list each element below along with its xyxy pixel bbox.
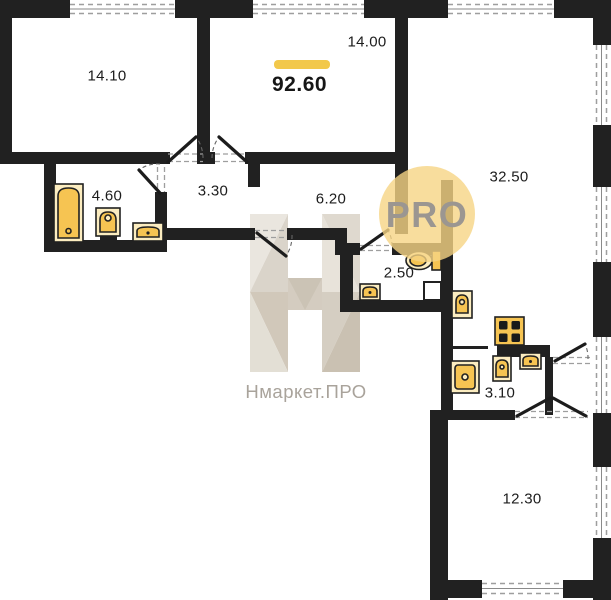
washing-machine-icon — [451, 361, 479, 393]
vent-shaft — [424, 282, 441, 300]
hall-sink-icon — [452, 291, 472, 318]
bathtub-icon — [54, 184, 83, 242]
room-area-bedroom-bottom: 12.30 — [502, 491, 541, 508]
brand-watermark-text: Нмаркет.ПРО — [245, 381, 366, 402]
total-area-callout: 92.60 — [272, 60, 336, 97]
room-area-bedroom-middle: 14.00 — [347, 34, 386, 51]
kitchen-sink-icon — [493, 356, 511, 381]
kitchen-basin-icon — [520, 353, 541, 369]
pro-badge-text: PRO — [386, 194, 469, 235]
floor-plan: PRO Нмаркет.ПРО 92.60 14.10 14.00 32.50 … — [0, 0, 611, 600]
room-area-living-room: 32.50 — [489, 169, 528, 186]
stove-icon — [495, 317, 524, 345]
small-sink-icon — [133, 223, 163, 247]
pro-badge: PRO — [379, 166, 475, 262]
room-area-hall-small: 3.30 — [198, 183, 228, 200]
room-area-wc: 2.50 — [384, 265, 414, 282]
room-area-bedroom-left: 14.10 — [87, 68, 126, 85]
room-area-hall-large: 6.20 — [316, 191, 346, 208]
pedestal-sink-icon — [96, 208, 120, 244]
wc-sink-icon — [360, 284, 380, 300]
accent-bar — [274, 60, 330, 69]
room-area-bathroom: 4.60 — [92, 188, 122, 205]
total-area-value: 92.60 — [272, 73, 336, 97]
room-area-kitchen-niche: 3.10 — [485, 385, 515, 402]
